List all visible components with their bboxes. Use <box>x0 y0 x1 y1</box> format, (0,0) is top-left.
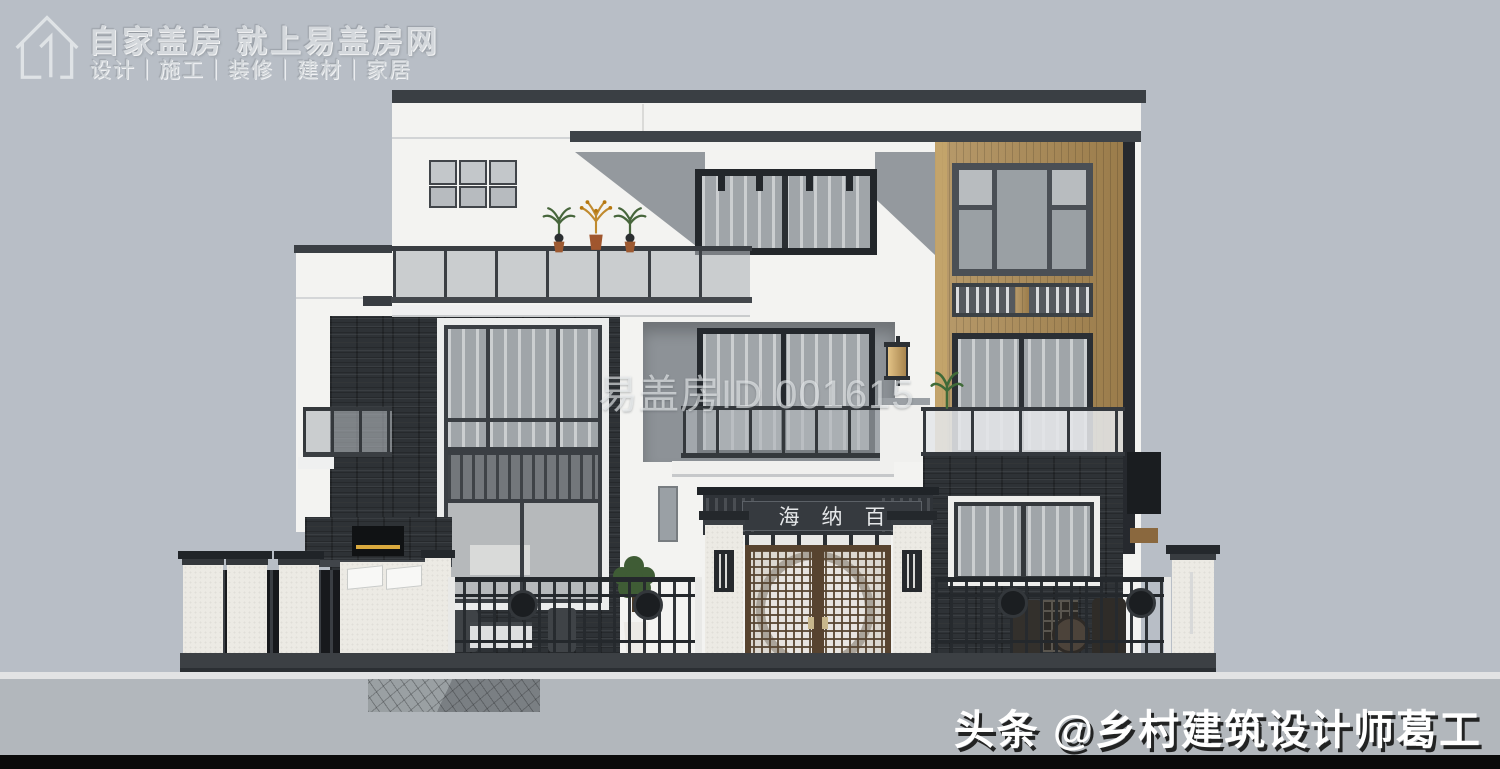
pillar-lamp-slots <box>905 554 919 588</box>
stone-foundation-texture <box>368 679 540 712</box>
gate-pillar <box>705 525 743 663</box>
fence-wall-inset <box>347 565 383 590</box>
warm-light-bar <box>356 545 400 549</box>
site-logo: 自家盖房 就上易盖房网 设计｜施工｜装修｜建材｜家居 <box>12 8 432 84</box>
window-mullion <box>782 176 788 248</box>
courtyard-rail-bar <box>448 594 702 597</box>
potted-plant-green <box>612 203 648 255</box>
corner-pillar-cap <box>1166 545 1220 554</box>
corner-pillar <box>1172 560 1214 666</box>
fireplace-niche <box>352 526 404 556</box>
annex-balcony-glass <box>303 411 393 452</box>
courtyard-rail-bar <box>935 640 1171 643</box>
terrace-bottom-rail <box>391 297 752 303</box>
balcony-bottom-rail <box>681 453 887 458</box>
author-credit: 头条 @乡村建筑设计师葛工 <box>954 696 1482 756</box>
gate-header-cap <box>697 487 939 495</box>
window-transom <box>959 205 992 210</box>
railing-white-post <box>448 577 455 661</box>
side-utility-box <box>1127 452 1161 514</box>
balcony-slab <box>672 461 894 477</box>
roof-band <box>570 131 1141 142</box>
small-window <box>429 160 457 185</box>
footer-bar <box>0 755 1500 769</box>
door-handle <box>822 617 828 629</box>
architectural-rendering-scene: 海纳百川 <box>0 0 1500 769</box>
window-mullion <box>1021 506 1026 576</box>
window-mullion <box>992 170 997 269</box>
fence-pillar <box>227 565 267 665</box>
gate-pillar-cap <box>699 511 749 520</box>
logo-subtitle: 设计｜施工｜装修｜建材｜家居 <box>90 54 412 84</box>
baluster-divider <box>1015 287 1029 313</box>
fence-pillar-cap <box>222 551 272 559</box>
railing-medallion <box>998 588 1028 618</box>
terrace-base-band <box>180 653 1216 672</box>
small-window <box>489 186 517 208</box>
corner-pillar-rod <box>1190 572 1193 634</box>
railing-medallion <box>508 590 538 620</box>
fence-end-pillar-cap <box>421 550 455 558</box>
house-logo-icon <box>12 10 82 82</box>
small-window <box>459 160 487 185</box>
gate-transom <box>745 535 891 545</box>
small-window <box>489 160 517 185</box>
curtain-tab <box>718 176 725 191</box>
curtain-tab <box>756 176 763 191</box>
fence-pillar <box>183 565 223 665</box>
window-transom <box>448 418 598 422</box>
fence-pillar-cap <box>274 551 324 559</box>
right-balcony-glass <box>923 411 1123 452</box>
window-mullion <box>486 329 490 447</box>
window-pane-light <box>1052 170 1086 205</box>
potted-plant-flower <box>575 197 617 255</box>
terrace-slab <box>392 305 750 317</box>
curtain-tab <box>806 176 813 191</box>
annex-balcony-ledge <box>298 457 334 469</box>
ground-line <box>0 672 1500 679</box>
roof-parapet-cap <box>392 90 1146 103</box>
window-pane-light <box>959 170 992 205</box>
pillar-lamp-slots <box>717 554 731 588</box>
wall-lantern-cap <box>884 342 910 347</box>
facade-joint <box>642 104 644 131</box>
balcony-plant-palm <box>930 364 964 414</box>
curtain-tab <box>846 176 853 191</box>
small-window <box>459 186 487 208</box>
gate-pillar <box>893 525 931 663</box>
parapet-joint-line <box>392 137 570 139</box>
pillar-lamp <box>902 550 922 592</box>
fence-pillar <box>279 565 319 665</box>
fence-pillar-cap <box>178 551 228 559</box>
tower-louver-band <box>448 451 598 503</box>
railing-white-post <box>695 577 702 661</box>
window-mullion <box>556 329 560 447</box>
courtyard-rail-bar <box>448 640 702 643</box>
side-wood-bracket <box>1130 528 1158 543</box>
pillar-lamp <box>714 550 734 592</box>
fence-wall-inset <box>386 565 422 590</box>
gate-pillar-cap <box>887 511 937 520</box>
window-transom <box>1052 205 1086 210</box>
terrace-glass <box>393 251 750 297</box>
wall-sconce-box <box>658 486 678 542</box>
door-handle <box>808 617 814 629</box>
railing-medallion <box>1126 588 1156 618</box>
potted-plant-green <box>541 203 577 255</box>
annex-parapet-cap <box>294 245 394 253</box>
tower-upper-glass <box>448 329 598 447</box>
watermark-id: 易盖房ID 001615 <box>598 362 915 420</box>
railing-white-post <box>1164 577 1171 661</box>
railing-medallion <box>633 590 663 620</box>
small-window <box>429 186 457 208</box>
